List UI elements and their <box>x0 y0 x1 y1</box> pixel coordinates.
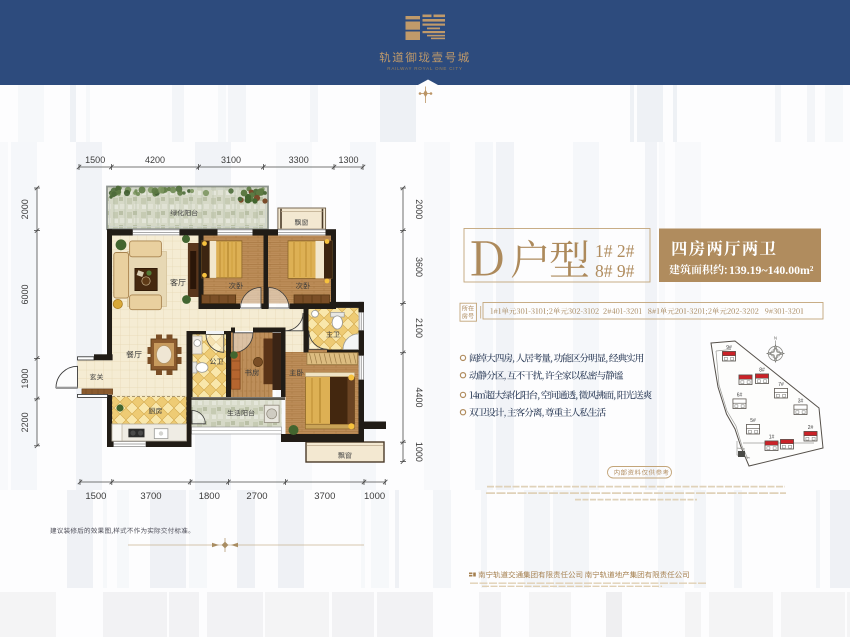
svg-text:2200: 2200 <box>20 412 30 432</box>
svg-text:2#: 2# <box>808 425 814 431</box>
svg-text:4400: 4400 <box>414 387 424 407</box>
svg-text:3100: 3100 <box>221 155 241 165</box>
svg-text:7#: 7# <box>778 382 784 388</box>
svg-text:1500: 1500 <box>85 491 106 502</box>
svg-text:1000: 1000 <box>364 491 385 502</box>
svg-text:1300: 1300 <box>338 155 358 165</box>
svg-text:2000: 2000 <box>20 199 30 219</box>
svg-text:2000: 2000 <box>414 199 424 219</box>
svg-text:3700: 3700 <box>140 491 161 502</box>
svg-text:1# 2#: 1# 2# <box>595 241 635 261</box>
svg-text:3#: 3# <box>798 399 804 405</box>
svg-text:6000: 6000 <box>20 284 30 304</box>
svg-text:2700: 2700 <box>246 491 267 502</box>
svg-text:6#: 6# <box>737 393 743 399</box>
svg-text:3300: 3300 <box>289 155 309 165</box>
svg-text:1000: 1000 <box>414 442 424 462</box>
svg-text:8# 9#: 8# 9# <box>595 261 635 281</box>
svg-text:1800: 1800 <box>199 491 220 502</box>
svg-text:5#: 5# <box>750 418 756 424</box>
svg-text:1500: 1500 <box>85 155 105 165</box>
svg-text:RAILWAY ROYAL ONE CITY: RAILWAY ROYAL ONE CITY <box>387 66 462 71</box>
svg-text:2100: 2100 <box>414 318 424 338</box>
svg-text:3600: 3600 <box>414 257 424 277</box>
svg-text:1#: 1# <box>769 435 775 441</box>
svg-text:1900: 1900 <box>20 369 30 389</box>
svg-text:4200: 4200 <box>145 155 165 165</box>
svg-text:3700: 3700 <box>314 491 335 502</box>
svg-text:9#: 9# <box>726 345 732 351</box>
svg-text:N: N <box>774 336 777 341</box>
svg-text:139.19~140.00m²: 139.19~140.00m² <box>729 263 814 277</box>
svg-text:8#: 8# <box>759 368 765 374</box>
